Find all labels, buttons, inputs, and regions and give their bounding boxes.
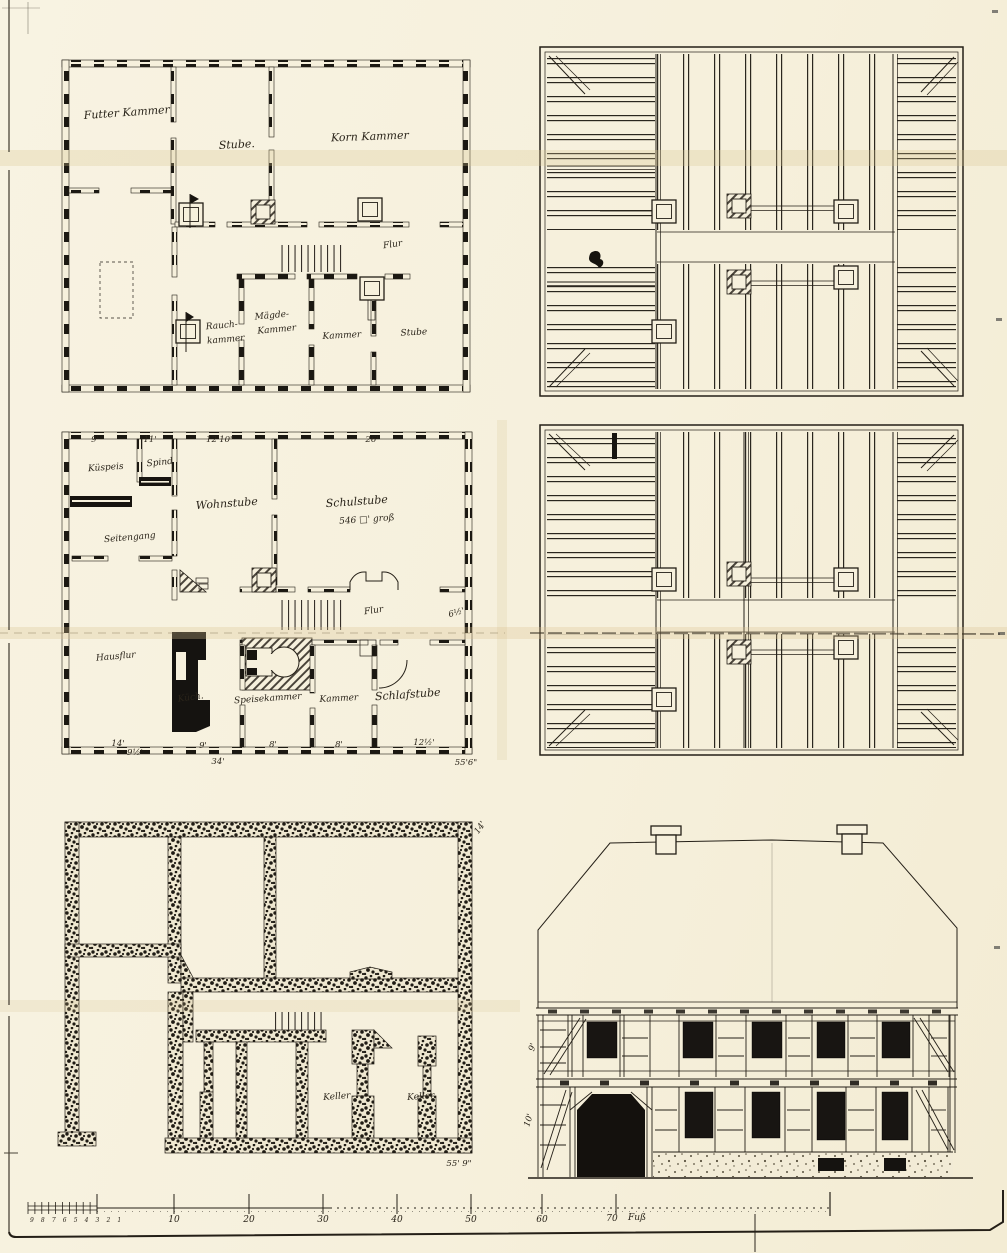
room-label: Wohnstube xyxy=(195,495,258,512)
plinth xyxy=(653,1152,953,1177)
room-label: Kammer xyxy=(318,693,359,705)
dim: 9' xyxy=(199,741,207,751)
dim: 26' xyxy=(364,435,378,445)
dim: 6½' xyxy=(447,605,465,620)
room-label: Stube xyxy=(400,327,427,338)
hall-label: Flur xyxy=(363,605,385,618)
room-label: Hausflur xyxy=(95,650,137,664)
room-label: Keller xyxy=(322,1091,352,1103)
arched-door xyxy=(360,640,407,688)
stair-hatch xyxy=(277,245,343,272)
sheet-frame-border xyxy=(9,1190,1003,1237)
dim: 9½' xyxy=(127,747,143,758)
room-label: Korn Kammer xyxy=(330,129,410,145)
lower-windows xyxy=(685,1092,908,1140)
cellar-pier xyxy=(352,1030,436,1138)
room-label: Küspeis xyxy=(87,462,125,475)
room-label: Speisekammer xyxy=(234,692,303,707)
upper-windows xyxy=(587,1022,910,1058)
stair-hatch xyxy=(277,600,343,630)
roof-framing-plan-upper xyxy=(540,47,963,396)
scale-unit-label: Fuß xyxy=(627,1213,646,1223)
room-label: Kammer xyxy=(256,323,297,336)
eaves-band xyxy=(536,1008,958,1015)
room-label: Futter Kammer xyxy=(82,103,171,122)
cellar-window xyxy=(818,1158,844,1171)
room-label: Schulstube xyxy=(325,493,388,510)
dim: 55' 9" xyxy=(446,1159,471,1169)
dim: 9' xyxy=(91,435,99,445)
entrance-door xyxy=(577,1094,645,1177)
dim: 12'10" xyxy=(206,435,234,445)
trapdoor-dashed xyxy=(100,262,133,318)
room-label: Seitengang xyxy=(104,531,157,545)
dim: 14' xyxy=(111,739,124,749)
hall-label: Flur xyxy=(382,239,404,252)
ground-floor-plan: 9' 11' 12'10" 26' Küspeis Spind Seitenga… xyxy=(62,432,477,768)
bake-oven xyxy=(242,638,312,690)
room-label: Kammer xyxy=(321,330,362,342)
scale-label: 70 xyxy=(606,1214,618,1224)
room-label: Mägde- xyxy=(253,310,289,323)
dim: 12½' xyxy=(413,737,434,748)
dim: 8' xyxy=(269,740,277,750)
roof-framing-plan-lower xyxy=(540,425,963,755)
scale-label: 50 xyxy=(465,1215,477,1225)
room-label: Schlafstube xyxy=(375,686,442,704)
kitchen-chimney-mass xyxy=(172,632,210,732)
room-label: Keller xyxy=(406,1091,436,1103)
cellar-window xyxy=(884,1158,906,1171)
dim: 8' xyxy=(335,740,343,750)
storey-band xyxy=(536,1079,957,1087)
dim: 11' xyxy=(143,435,156,445)
stair-hatch xyxy=(272,1012,326,1030)
dim: 10' xyxy=(522,1113,536,1129)
room-label: Rauch- xyxy=(204,320,238,333)
room-label: Spind xyxy=(146,457,174,470)
scale-label: 10 xyxy=(168,1215,180,1225)
architectural-drawing: Futter Kammer Stube. Korn Kammer Flur Ra… xyxy=(0,0,1007,1253)
scale-minor-labels: 9 8 7 6 5 4 3 2 1 xyxy=(30,1217,124,1224)
scale-label: 30 xyxy=(317,1215,329,1225)
room-size-label: 546 □' groß xyxy=(339,513,395,527)
upper-floor-plan: Futter Kammer Stube. Korn Kammer Flur Ra… xyxy=(62,60,470,392)
scale-label: 60 xyxy=(536,1215,548,1225)
room-label: Stube. xyxy=(218,137,255,152)
scale-bar: 9 8 7 6 5 4 3 2 1 10 20 30 40 50 60 70 F… xyxy=(28,1192,830,1225)
basement-plan: Keller Keller 55' 9" 14' xyxy=(58,820,488,1169)
dim: 55'6" xyxy=(455,758,478,768)
drawing-sheet: Futter Kammer Stube. Korn Kammer Flur Ra… xyxy=(0,0,1007,1253)
dim: 9' xyxy=(527,1042,539,1052)
stove-platform xyxy=(350,572,398,590)
front-elevation: 9' 10' xyxy=(522,825,973,1178)
dim: 14' xyxy=(472,820,488,837)
dim: 34' xyxy=(211,757,224,767)
chimney xyxy=(651,825,867,854)
scale-label: 20 xyxy=(242,1215,255,1225)
roof xyxy=(538,840,957,1008)
scale-label: 40 xyxy=(390,1215,403,1225)
upper-storey xyxy=(538,1015,955,1077)
